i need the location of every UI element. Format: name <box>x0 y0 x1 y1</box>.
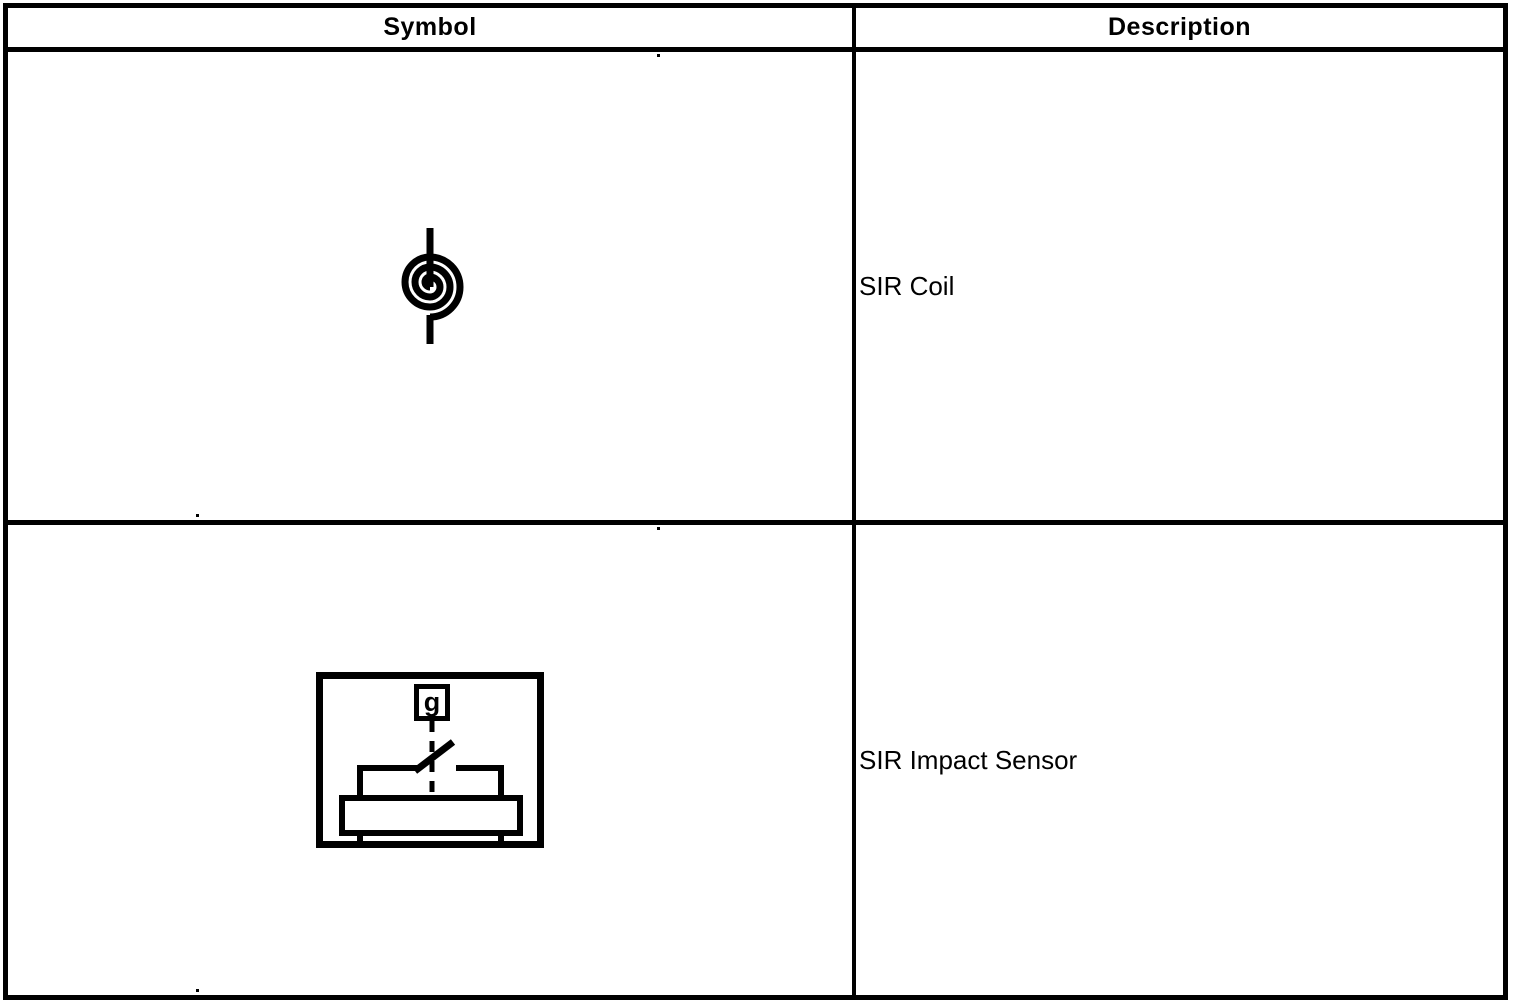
symbol-legend-page: Symbol Description SIR Coil <box>0 0 1520 1004</box>
column-header-description: Description <box>856 8 1503 52</box>
scan-speck <box>657 527 660 530</box>
description-cell-sir-coil: SIR Coil <box>856 52 1503 525</box>
sensor-mass-bar <box>342 798 520 833</box>
symbol-cell-sir-coil <box>8 52 856 525</box>
column-header-symbol: Symbol <box>8 8 856 52</box>
symbol-cell-sir-impact-sensor: g <box>8 525 856 995</box>
scan-speck <box>196 514 199 517</box>
sir-impact-sensor-icon: g <box>316 672 544 848</box>
symbol-description-table: Symbol Description SIR Coil <box>3 3 1508 1000</box>
description-cell-sir-impact-sensor: SIR Impact Sensor <box>856 525 1503 995</box>
sir-coil-icon <box>372 228 488 344</box>
scan-speck <box>196 989 199 992</box>
scan-speck <box>657 54 660 57</box>
sensor-g-label: g <box>424 687 441 717</box>
